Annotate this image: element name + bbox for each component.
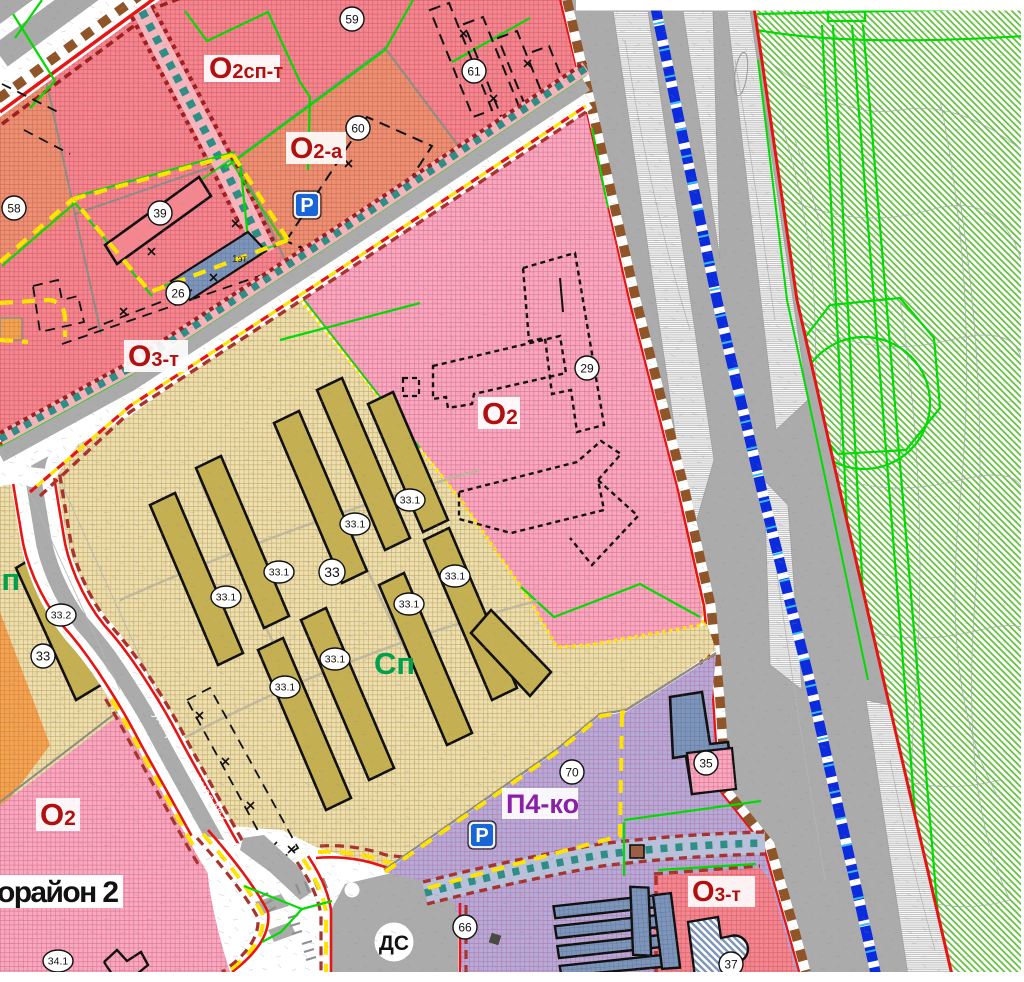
svg-text:33.1: 33.1	[445, 571, 466, 583]
svg-text:1эт.: 1эт.	[232, 254, 249, 265]
svg-text:33.1: 33.1	[325, 654, 346, 666]
svg-text:Сп: Сп	[374, 646, 415, 681]
svg-text:P: P	[475, 825, 488, 847]
svg-text:58: 58	[7, 202, 21, 216]
svg-text:66: 66	[458, 921, 472, 935]
svg-text:39: 39	[153, 207, 167, 221]
svg-text:33.1: 33.1	[275, 682, 296, 694]
svg-text:33.1: 33.1	[216, 592, 237, 604]
svg-text:35: 35	[699, 757, 713, 771]
svg-text:61: 61	[467, 65, 481, 79]
svg-text:34.1: 34.1	[48, 956, 69, 968]
svg-text:33: 33	[36, 649, 50, 664]
svg-text:P: P	[300, 195, 313, 217]
svg-text:орайон 2: орайон 2	[0, 876, 119, 909]
svg-text:26: 26	[171, 287, 185, 301]
svg-text:37: 37	[724, 958, 738, 972]
svg-text:60: 60	[351, 122, 365, 136]
svg-text:33.1: 33.1	[400, 495, 421, 507]
svg-text:70: 70	[565, 766, 579, 780]
svg-text:33.1: 33.1	[269, 567, 290, 579]
svg-text:Сп: Сп	[0, 562, 20, 597]
svg-text:33.1: 33.1	[345, 519, 366, 531]
svg-text:29: 29	[580, 362, 594, 376]
svg-text:33.2: 33.2	[51, 610, 72, 622]
svg-text:П4-ко: П4-ко	[506, 789, 579, 819]
svg-text:33: 33	[324, 564, 340, 580]
svg-text:59: 59	[345, 13, 359, 27]
svg-text:33.1: 33.1	[399, 599, 420, 611]
